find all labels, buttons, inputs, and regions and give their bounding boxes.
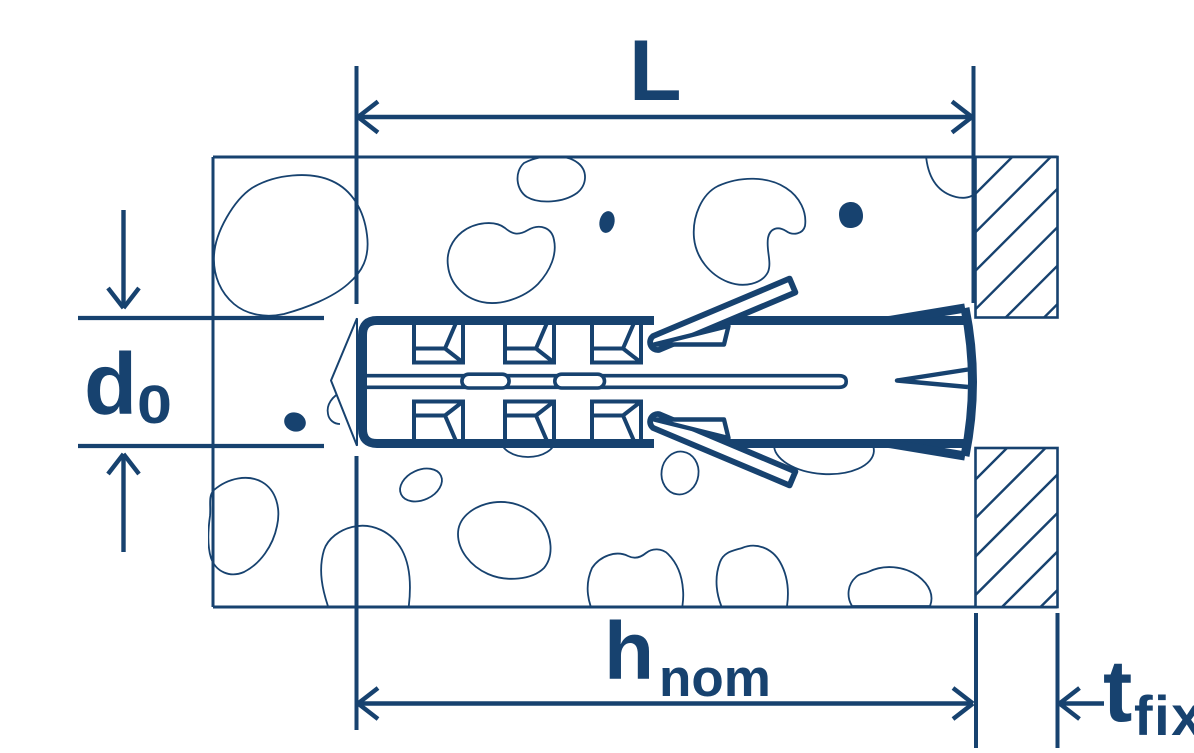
svg-text:h: h	[604, 606, 654, 697]
svg-text:0: 0	[137, 375, 172, 435]
svg-text:t: t	[1103, 641, 1132, 740]
svg-text:L: L	[629, 23, 682, 119]
svg-text:nom: nom	[659, 649, 771, 708]
svg-text:d: d	[84, 336, 137, 433]
svg-text:fix: fix	[1134, 684, 1194, 747]
